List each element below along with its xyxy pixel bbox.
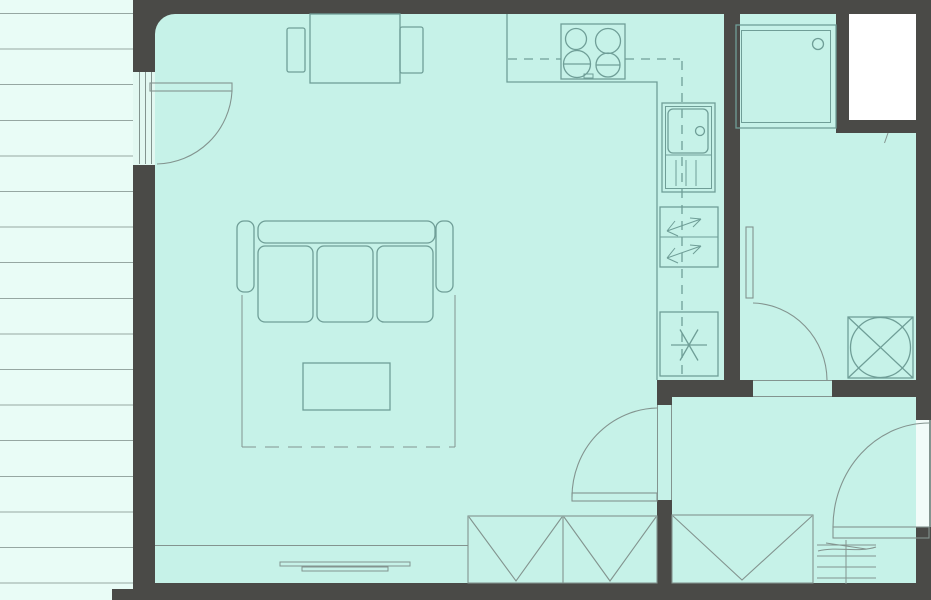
balcony-door-glazing bbox=[133, 72, 155, 165]
bathroom-floor bbox=[740, 133, 916, 380]
wall-stub-bottom-left bbox=[112, 589, 133, 600]
kitchen-floor bbox=[657, 14, 724, 380]
bathroom-floor-upper bbox=[740, 14, 836, 133]
floor-plan bbox=[0, 0, 931, 600]
balcony-floor bbox=[0, 0, 133, 600]
doorway-living-hall bbox=[657, 405, 672, 500]
doorway-entrance bbox=[916, 420, 931, 527]
doorway-bathroom-hall bbox=[753, 380, 832, 397]
living-room-floor bbox=[155, 14, 657, 583]
light-shaft bbox=[849, 14, 916, 120]
hallway-floor bbox=[672, 397, 916, 583]
